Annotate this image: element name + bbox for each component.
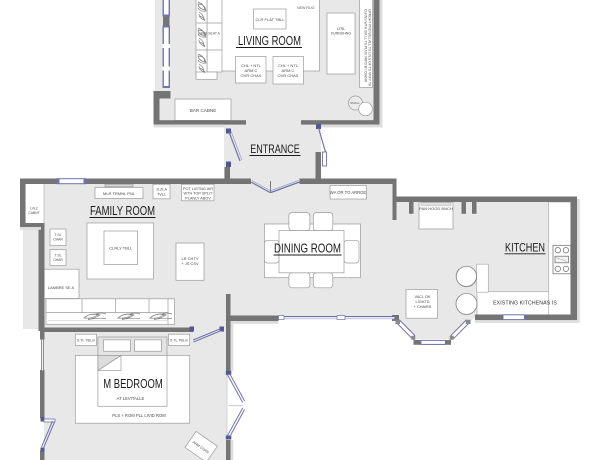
svg-text:VACL OK: VACL OK: [414, 295, 431, 299]
svg-text:CABNT: CABNT: [28, 211, 40, 215]
svg-text:AT LEVITALLE: AT LEVITALLE: [117, 396, 145, 401]
svg-text:PLS + ROM PLL LIVID ROM: PLS + ROM PLL LIVID ROM: [112, 413, 166, 418]
svg-text:PLANLY ABOV: PLANLY ABOV: [185, 196, 211, 200]
svg-text:CHAR: CHAR: [53, 238, 63, 242]
svg-text:LIVING ROOM: LIVING ROOM: [238, 33, 301, 48]
svg-text:T SL: T SL: [54, 233, 61, 237]
svg-text:EXISTING KITCHENAS IS: EXISTING KITCHENAS IS: [493, 301, 557, 307]
svg-text:WTH TOP SPLIT: WTH TOP SPLIT: [184, 192, 214, 196]
svg-text:MLR TRMNL PNL: MLR TRMNL PNL: [103, 191, 136, 196]
svg-text:CLRLY TBLL: CLRLY TBLL: [109, 246, 133, 251]
svg-text:+ JS CSV: + JS CSV: [181, 261, 199, 266]
svg-text:KITCHEN: KITCHEN: [505, 243, 545, 255]
svg-text:OVR CHAS: OVR CHAS: [241, 73, 262, 78]
svg-text:LIGHTD: LIGHTD: [416, 300, 430, 304]
svg-text:S TL TBLm: S TL TBLm: [77, 339, 95, 343]
svg-text:SMALL: SMALL: [350, 101, 360, 105]
svg-text:JLZLA: JLZLA: [156, 188, 167, 192]
svg-text:FAMILY ROOM: FAMILY ROOM: [90, 204, 155, 218]
svg-text:BAR CABNE: BAR CABNE: [190, 108, 217, 113]
svg-text:LAMBRE SE A: LAMBRE SE A: [48, 285, 75, 290]
svg-text:CHAR: CHAR: [53, 258, 63, 262]
svg-text:NEW RUG: NEW RUG: [297, 6, 315, 10]
svg-text:T SL: T SL: [54, 254, 61, 258]
svg-text:LTRL: LTRL: [337, 27, 346, 31]
svg-text:LVL2: LVL2: [30, 207, 38, 211]
svg-text:CLR FLAT TBLL: CLR FLAT TBLL: [255, 17, 285, 22]
svg-text:M BEDROOM: M BEDROOM: [103, 377, 163, 391]
svg-text:OVR CHAS: OVR CHAS: [278, 73, 299, 78]
svg-text:WA OR TO ARRGE: WA OR TO ARRGE: [330, 190, 367, 195]
svg-text:CLRNS WTH SM LL TS PLNS VRFD B: CLRNS WTH SM LL TS PLNS VRFD BY OWNR: [364, 9, 368, 83]
svg-text:POT LIGTNG AIR: POT LIGTNG AIR: [183, 187, 213, 191]
svg-text:DINING ROOM: DINING ROOM: [274, 242, 341, 256]
svg-text:TVLL: TVLL: [157, 193, 166, 197]
svg-text:S TL TBLm: S TL TBLm: [170, 339, 188, 343]
svg-text:PAN HOOD BNCH: PAN HOOD BNCH: [419, 206, 453, 211]
svg-text:+ CHAIRS: + CHAIRS: [414, 305, 432, 309]
svg-text:ENTRANCE: ENTRANCE: [250, 142, 300, 156]
svg-text:FURNSHNG: FURNSHNG: [331, 32, 352, 36]
